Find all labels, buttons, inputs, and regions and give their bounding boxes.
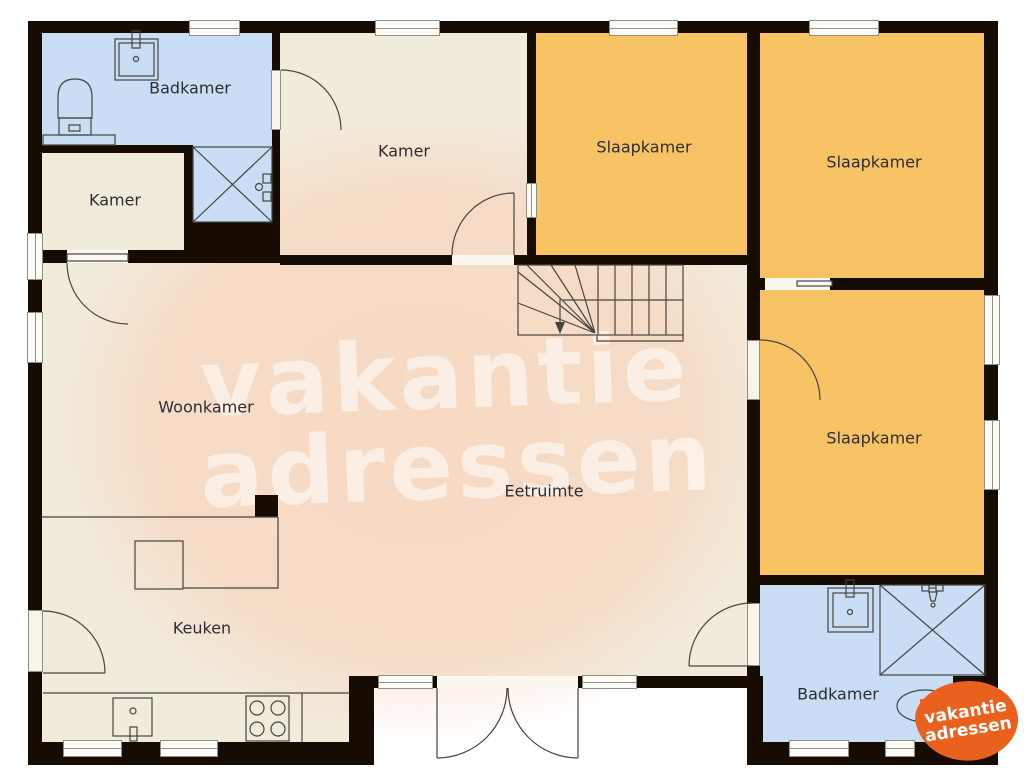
room-label-keuken: Keuken xyxy=(173,619,231,638)
shower-icon xyxy=(193,147,272,222)
shower-head-icon xyxy=(922,585,943,607)
kitchen-sink-icon xyxy=(113,698,152,741)
stair-direction-arrow-icon xyxy=(555,298,565,334)
room-label-slaapkamer-1: Slaapkamer xyxy=(596,138,691,157)
room-label-slaapkamer-3: Slaapkamer xyxy=(826,429,921,448)
room-label-badkamer-2: Badkamer xyxy=(797,685,879,704)
shower-icon xyxy=(880,585,985,675)
room-label-slaapkamer-2: Slaapkamer xyxy=(826,153,921,172)
sink-icon xyxy=(828,580,873,632)
linework-layer xyxy=(0,0,1024,768)
stairs-icon xyxy=(518,265,683,341)
room-label-kamer-top: Kamer xyxy=(378,142,430,161)
room-label-woonkamer: Woonkamer xyxy=(158,398,253,417)
door-swing-icon xyxy=(43,70,820,673)
floorplan: vakantie adressen xyxy=(0,0,1024,768)
sliding-door-icon xyxy=(797,281,832,286)
toilet-icon xyxy=(43,79,115,145)
stove-icon xyxy=(246,696,289,741)
vakantieadressen-logo: vakantie adressen xyxy=(910,674,1023,768)
kitchen-island-icon xyxy=(135,541,183,589)
room-label-badkamer-1: Badkamer xyxy=(149,79,231,98)
french-doors-icon xyxy=(437,688,578,758)
room-label-kamer-left: Kamer xyxy=(89,191,141,210)
sink-icon xyxy=(115,31,158,80)
room-label-eetruimte: Eetruimte xyxy=(504,482,583,501)
